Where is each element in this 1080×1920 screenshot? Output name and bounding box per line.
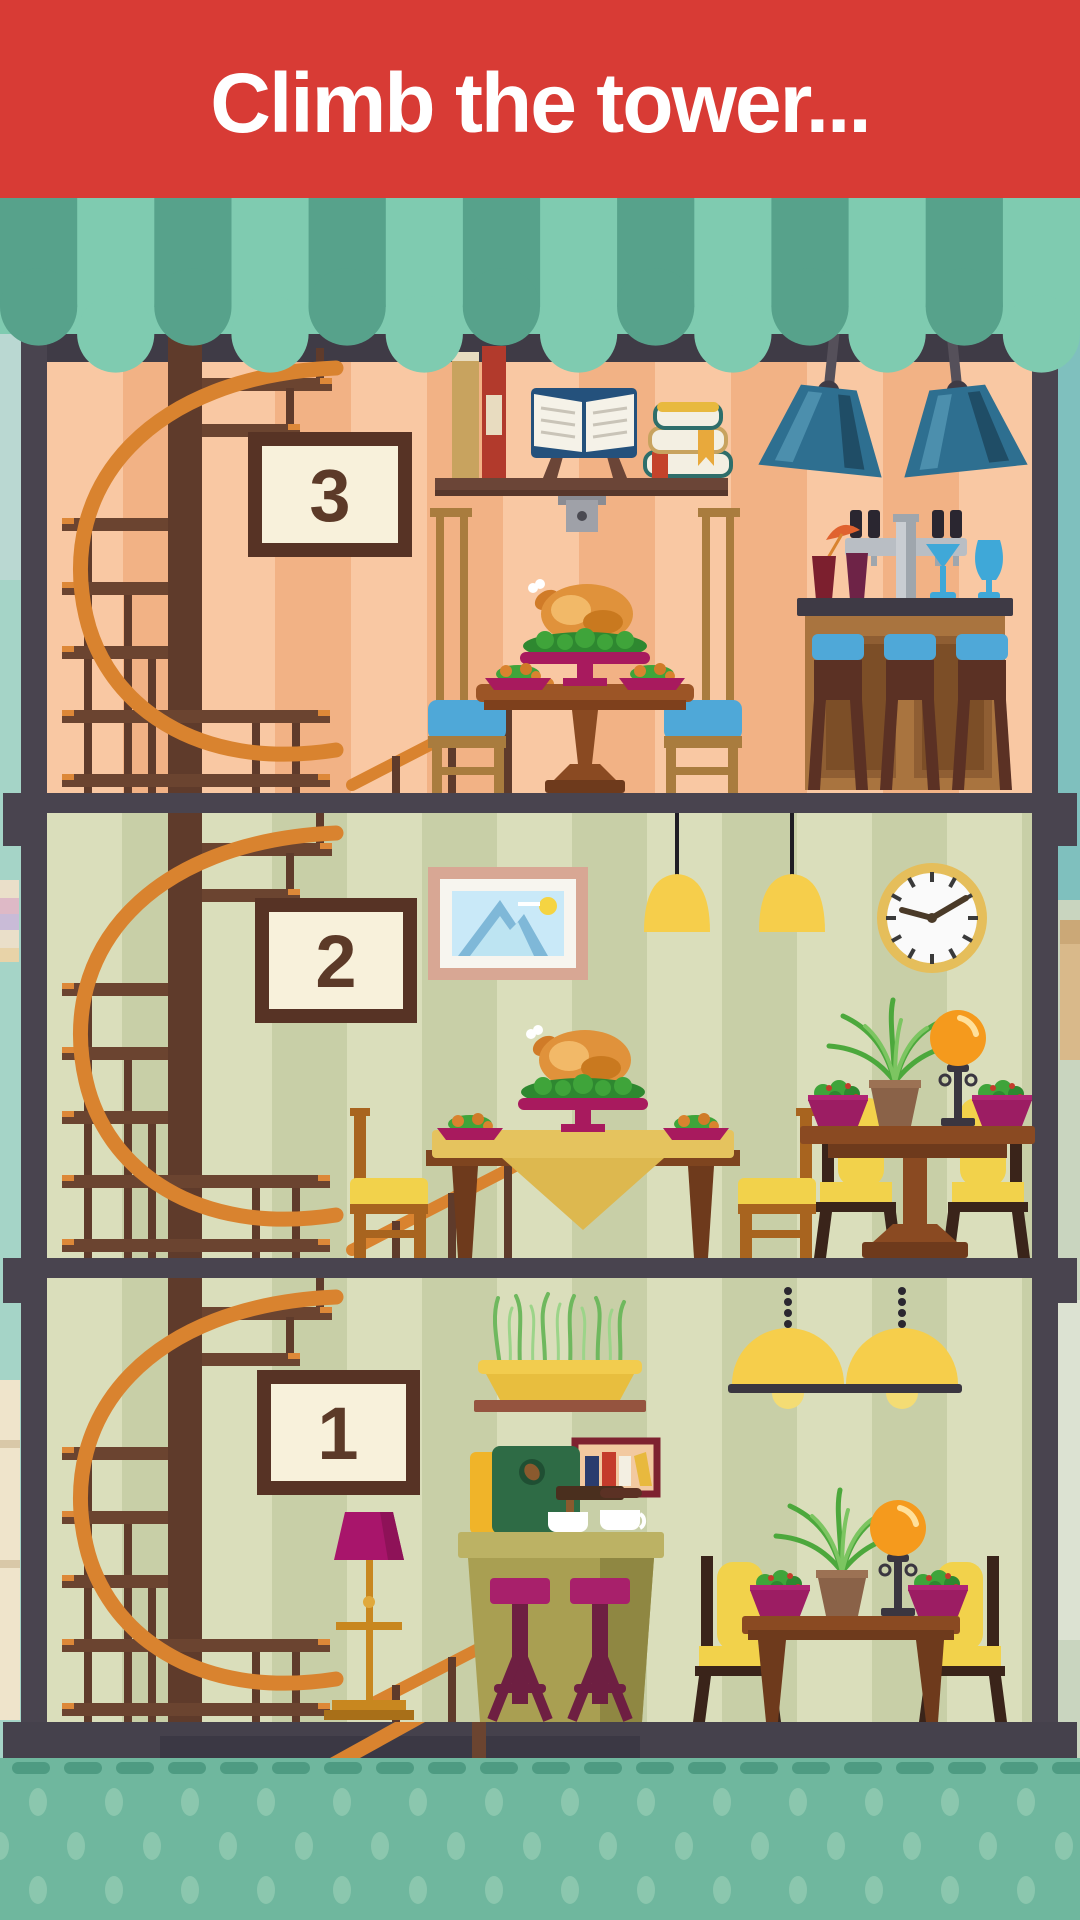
tower-left-wall (21, 300, 47, 1758)
coffee-bar-counter (458, 1532, 664, 1722)
floor-1-sign: 1 (257, 1370, 420, 1495)
floor-2-sign: 2 (255, 898, 417, 1023)
floor-1-number: 1 (317, 1392, 358, 1475)
mountain-picture-frame (428, 867, 588, 980)
ground (0, 1758, 1080, 1920)
red-drink (812, 556, 836, 600)
wall-clock (882, 868, 982, 968)
outside-left-background (0, 198, 21, 1758)
coffee-cup (600, 1510, 640, 1530)
outside-right-background (1058, 198, 1080, 1758)
coffee-cup (548, 1512, 588, 1532)
tower-illustration: 3 (0, 0, 1080, 1920)
floor-3-sign: 3 (248, 432, 412, 557)
header: Climb the tower... (0, 0, 1080, 198)
floor-3-number: 3 (309, 454, 350, 537)
building-base (3, 1722, 1077, 1758)
tower-right-wall (1032, 300, 1058, 1758)
floor-2-number: 2 (315, 920, 356, 1003)
game-screen: 3 (0, 0, 1080, 1920)
page-title: Climb the tower... (210, 56, 869, 150)
